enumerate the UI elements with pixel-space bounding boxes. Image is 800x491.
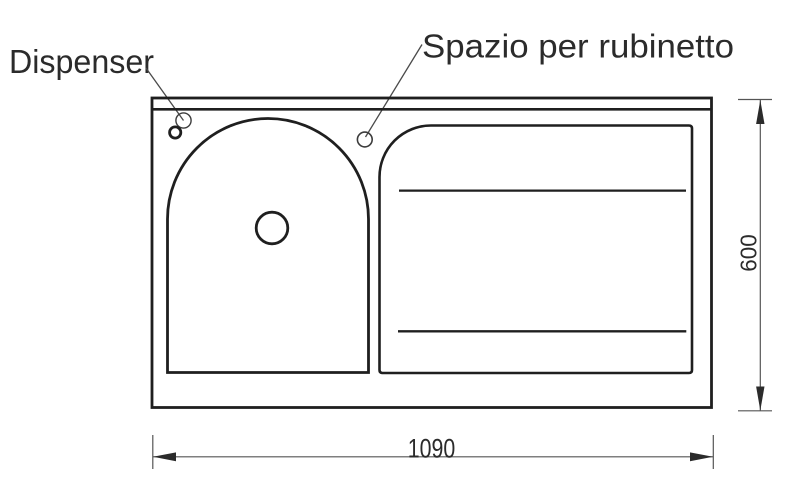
svg-text:Spazio per rubinetto: Spazio per rubinetto [422, 28, 734, 65]
svg-text:Dispenser: Dispenser [9, 43, 154, 80]
svg-text:600: 600 [736, 234, 762, 272]
svg-text:1090: 1090 [408, 434, 456, 464]
